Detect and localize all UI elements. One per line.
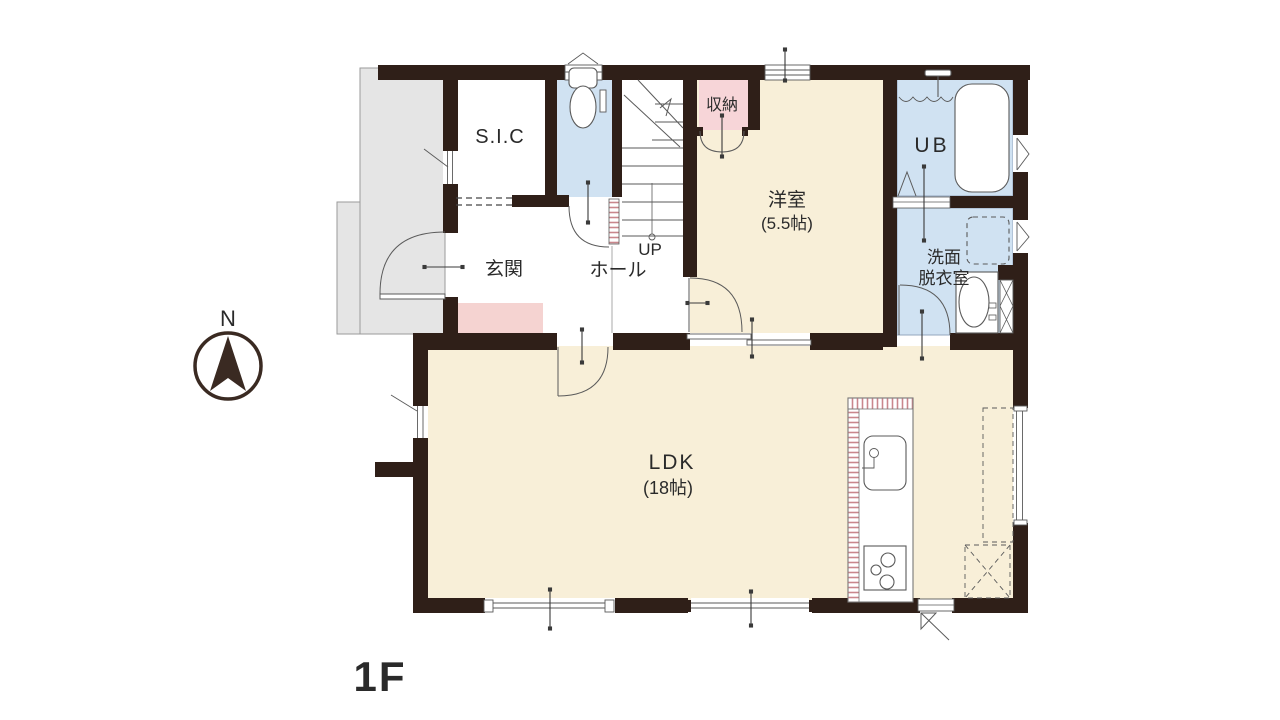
label-western-room: 洋室 — [768, 189, 806, 211]
stairs — [622, 80, 683, 240]
awning-window-icon — [568, 53, 598, 64]
label-sic: S.I.C — [475, 126, 524, 148]
floor-plan-page: N S.I.C 収納 洋室 (5.5帖) UB 洗面 脱衣室 玄関 ホール UP… — [0, 0, 1280, 720]
kitchen-counter — [848, 398, 913, 602]
label-western-room-size: (5.5帖) — [761, 214, 813, 233]
linen-cabinet-icon — [1000, 280, 1013, 333]
kitchen-sink-icon — [862, 436, 906, 490]
sliding-door-panel — [687, 334, 751, 339]
label-ldk-size: (18帖) — [643, 478, 693, 498]
stair-break-line — [624, 95, 680, 147]
genkan-mat — [455, 303, 543, 333]
label-up: UP — [638, 240, 662, 259]
ldk-floor — [428, 346, 1013, 600]
label-hall: ホール — [589, 260, 646, 281]
shower-icon — [925, 70, 951, 76]
sliding-door-panel — [747, 340, 811, 345]
floor-plan: N S.I.C 収納 洋室 (5.5帖) UB 洗面 脱衣室 玄関 ホール UP… — [0, 0, 1280, 720]
label-unit-bath: UB — [914, 134, 949, 157]
label-genkan: 玄関 — [485, 258, 523, 280]
toilet-door-swing — [569, 206, 609, 247]
compass-icon: N — [195, 306, 261, 399]
label-ldk: LDK — [649, 451, 696, 474]
stove-icon — [864, 546, 906, 590]
toilet-door-leaf — [609, 199, 619, 244]
floor-label: 1F — [353, 653, 406, 700]
entry-door-leaf — [380, 294, 445, 299]
compass-north-label: N — [220, 306, 236, 331]
label-washroom-1: 洗面 — [927, 248, 961, 267]
label-closet: 収納 — [706, 96, 738, 114]
back-door-swing — [921, 613, 949, 640]
label-washroom-2: 脱衣室 — [919, 269, 970, 288]
